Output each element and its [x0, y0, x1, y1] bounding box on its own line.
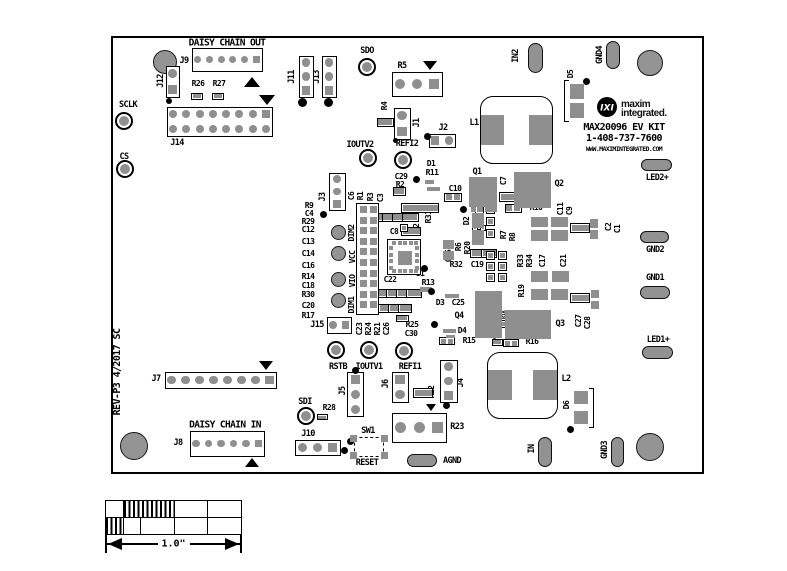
passive-pad [572, 298, 589, 302]
strip-pad [370, 238, 377, 245]
pin-round [351, 405, 360, 414]
passive-pad [394, 191, 404, 194]
label-gnd1: GND1 [646, 274, 664, 283]
arrowhead-left [108, 538, 122, 550]
connector-j9 [192, 48, 263, 72]
label-r6: R6 [455, 243, 463, 251]
label-1-408-737-7600: 1-408-737-7600 [586, 134, 662, 144]
smd-pad [472, 230, 484, 245]
pin-round [397, 111, 407, 121]
smd-pad [574, 411, 588, 424]
switch-pad [350, 452, 357, 459]
smd-pad [531, 230, 548, 241]
pin-round [249, 125, 257, 133]
passive-component [444, 193, 462, 202]
label-q4: Q4 [454, 312, 463, 321]
scale-cell [207, 518, 241, 534]
maxim-logo-wordmark: maxim integrated. [621, 100, 667, 118]
label-r23: R23 [450, 423, 464, 432]
smd-pad [400, 224, 408, 232]
pin1-marker-dot [583, 78, 590, 85]
label-d1: D1 [427, 160, 435, 168]
diode-bracket [564, 80, 569, 122]
label-sclk: SCLK [119, 101, 137, 110]
testpoint-ioutv2 [359, 149, 377, 167]
passive-component [377, 118, 394, 127]
label-r21: R21 [374, 323, 382, 336]
passive-component [398, 304, 412, 313]
connector-j3 [329, 173, 346, 211]
smd-pad [443, 329, 456, 333]
mounting-hole [120, 432, 148, 460]
smd-pad [551, 230, 568, 241]
label-j9: J9 [179, 57, 188, 66]
label-c14: C14 [302, 250, 315, 258]
mounting-hole [637, 50, 663, 76]
label-c28: C28 [584, 317, 592, 330]
label-refi1: REFI1 [399, 363, 422, 372]
strip-pad [360, 227, 367, 234]
pin-round [302, 72, 310, 80]
label-rstb: RSTB [329, 363, 347, 372]
pin1-marker-dot [324, 98, 333, 107]
passive-component [401, 203, 439, 213]
connector-j14 [167, 107, 273, 137]
passive-pad [448, 339, 454, 344]
label-ioutv1: IOUTV1 [355, 363, 382, 372]
connector-j7 [165, 372, 277, 389]
label-c16: C16 [302, 262, 315, 270]
testpoint-refi1 [395, 342, 413, 360]
pin-round [242, 440, 250, 448]
via-pad [331, 246, 346, 261]
pin-round [167, 376, 175, 384]
smd-pad [486, 251, 495, 260]
label-r11: R11 [426, 169, 439, 177]
label-reset: RESET [356, 459, 379, 468]
qfn-pad [415, 253, 419, 257]
pin1-marker-dot [421, 265, 428, 272]
pad-in2 [528, 43, 543, 73]
label-j2: J2 [438, 124, 447, 133]
pin1-marker-dot [413, 176, 420, 183]
pin-round [169, 125, 177, 133]
pin-round [302, 58, 310, 66]
pin-round [209, 125, 217, 133]
label-in2: IN2 [512, 49, 521, 63]
connector-j10 [295, 440, 341, 456]
strip-pad [370, 280, 377, 287]
pin1-marker-dot [460, 206, 467, 213]
via-pad [331, 293, 346, 308]
pad-led1 [642, 346, 673, 359]
passive-pad [378, 122, 392, 125]
passive-pad [402, 316, 407, 320]
passive-pad [403, 208, 438, 212]
label-r26: R26 [192, 80, 205, 88]
smd-pad [551, 217, 568, 227]
label-r14: R14 [302, 273, 315, 281]
pin-round [445, 136, 453, 144]
label-c11: C11 [557, 203, 565, 216]
label-r28: R28 [323, 404, 336, 412]
smd-pad [531, 217, 548, 227]
label-c20: C20 [302, 302, 315, 310]
scale-arrow: 1.0" [105, 534, 242, 554]
passive-pad [446, 194, 452, 200]
via-pad [331, 225, 346, 240]
label-r27: R27 [213, 80, 226, 88]
label-j14: J14 [170, 139, 184, 148]
pad-gnd3 [611, 437, 624, 467]
smd-pad [514, 172, 551, 208]
label-c8: C8 [390, 228, 398, 236]
scale-cell-hatched [123, 501, 174, 517]
pin-round [329, 321, 337, 329]
pin-1-square [168, 85, 176, 93]
pin-round [333, 175, 341, 183]
maxim-logo-icon: IXI [596, 96, 618, 122]
pin-round [182, 110, 190, 118]
pin-round [222, 125, 230, 133]
label-r34: R34 [526, 255, 534, 268]
label-c22: C22 [384, 276, 397, 284]
connector-j8 [190, 431, 265, 457]
pin-round [237, 376, 245, 384]
passive-component [191, 93, 203, 100]
smd-pad [531, 289, 548, 300]
pin-round [313, 443, 322, 452]
scale-cell [123, 518, 140, 534]
pin-1-square [265, 376, 273, 384]
smd-pad [472, 213, 484, 228]
smd-pad [469, 177, 497, 207]
smd-pad [531, 271, 548, 282]
pin-1-square [328, 443, 337, 452]
scale-cell [207, 501, 241, 517]
testpoint-cs [116, 160, 134, 178]
pad-gnd2 [640, 231, 669, 243]
strip-pad [360, 270, 367, 277]
via-pad [331, 272, 346, 287]
passive-component [393, 187, 406, 196]
label-r15: R15 [463, 337, 476, 345]
pin-1-square [395, 375, 404, 384]
pin-round [205, 440, 213, 448]
pin-round [218, 56, 225, 63]
smd-pad [446, 335, 455, 338]
pin-round [325, 58, 333, 66]
triangle-marker-down [259, 361, 273, 370]
passive-pad [408, 293, 421, 296]
pin-round [181, 376, 189, 384]
label-c30: C30 [405, 330, 418, 338]
passive-component [317, 414, 328, 420]
ic-u1 [387, 239, 421, 275]
passive-component [570, 293, 590, 303]
label-daisy-chain-in: DAISY CHAIN IN [189, 420, 261, 430]
pin-round [222, 110, 230, 118]
smd-pad [498, 262, 507, 271]
label-r5: R5 [397, 62, 406, 71]
pin-round [229, 56, 236, 63]
scale-tick [240, 535, 242, 553]
passive-strip [356, 203, 379, 315]
label-gnd3: GND3 [601, 441, 610, 459]
label-c12: C12 [302, 226, 315, 234]
qfn-pad [392, 241, 396, 245]
label-j5: J5 [339, 386, 348, 395]
pin1-marker-dot [166, 98, 172, 104]
smd-pad [570, 84, 584, 99]
label-l2: L2 [561, 375, 570, 384]
smd-pad [486, 229, 495, 238]
label-r30: R30 [302, 291, 315, 299]
passive-component [212, 93, 224, 100]
smd-pad [475, 291, 502, 338]
pin-1-square [429, 79, 439, 89]
smd-pad [478, 206, 483, 212]
pin1-marker-dot [443, 402, 450, 409]
pin-round [196, 110, 204, 118]
qfn-pad [403, 241, 407, 245]
pin-round [230, 440, 238, 448]
pin1-marker-dot [352, 367, 359, 374]
connector-j15 [327, 317, 352, 334]
passive-pad [512, 341, 518, 346]
pin-round [195, 376, 203, 384]
label-agnd: AGND [443, 457, 461, 466]
label-d5: D5 [567, 70, 575, 78]
strip-pad [370, 248, 377, 255]
label-d3: D3 [436, 299, 444, 307]
pad-led2 [641, 159, 672, 171]
label-r3: R3 [367, 193, 375, 201]
pin-1-square [325, 86, 333, 94]
strip-pad [370, 270, 377, 277]
qfn-pad [398, 251, 412, 265]
label-j4: J4 [457, 378, 466, 387]
pin-round [444, 377, 453, 386]
passive-pad [403, 217, 417, 220]
label-ioutv2: IOUTV2 [346, 141, 373, 150]
pin-round [209, 376, 217, 384]
connector-j4 [440, 360, 458, 403]
strip-pad [360, 291, 367, 298]
scale-bar-row [106, 518, 241, 534]
label-c2: C2 [605, 223, 613, 231]
smd-pad [486, 273, 495, 282]
passive-pad [506, 205, 512, 211]
pad-in [538, 437, 552, 467]
label-c27: C27 [575, 315, 583, 328]
passive-component [396, 315, 409, 322]
qfn-pad [414, 241, 418, 245]
smd-pad [498, 251, 507, 260]
strip-pad [360, 248, 367, 255]
label-q2: Q2 [554, 180, 563, 189]
smd-pad [445, 294, 459, 298]
diode-bracket [589, 388, 594, 428]
label-l1: L1 [469, 119, 478, 128]
strip-pad [360, 301, 367, 308]
pcb-silkscreen-figure: DAISY CHAIN OUTJ9R26R27SCLKJ14CSJ12J11J1… [0, 0, 787, 571]
pin1-marker-dot [431, 321, 438, 328]
pin-round [169, 110, 177, 118]
label-c7: C7 [500, 177, 508, 185]
label-in: IN [528, 444, 537, 453]
passive-component [413, 388, 433, 398]
connector-j2 [429, 134, 456, 148]
label-r24: R24 [365, 323, 373, 336]
qfn-pad [389, 253, 393, 257]
connector-r5 [392, 72, 443, 97]
pin-round [235, 125, 243, 133]
qfn-pad [415, 246, 419, 250]
scale-cell [174, 501, 208, 517]
qfn-pad [415, 259, 419, 263]
inductor-pad [529, 115, 552, 145]
scale-cell-hatched [106, 518, 123, 534]
label-c3: C3 [377, 194, 385, 202]
connector-r23 [392, 413, 447, 443]
label-sdi: SDI [298, 398, 312, 407]
smd-pad [591, 301, 599, 309]
pin-round [235, 110, 243, 118]
pin-1-square [351, 375, 360, 384]
label-r32: R32 [450, 261, 463, 269]
smd-pad [486, 217, 495, 226]
scale-bar [105, 500, 242, 535]
smd-pad [485, 206, 490, 212]
label-c9: C9 [566, 207, 574, 215]
passive-component [439, 337, 455, 345]
scale-length-label: 1.0" [157, 539, 189, 550]
passive-pad [572, 228, 589, 232]
inductor-l2 [487, 352, 558, 419]
pin-round [298, 443, 307, 452]
pin-round [414, 422, 425, 433]
passive-pad [218, 94, 222, 98]
pin-round [412, 79, 422, 89]
pin-round [395, 79, 405, 89]
inductor-l1 [480, 96, 553, 164]
strip-pad [370, 217, 377, 224]
pin-round [333, 188, 341, 196]
scale-cell [174, 518, 208, 534]
pin1-marker-dot [298, 98, 307, 107]
pin-round [262, 125, 270, 133]
pin-round [223, 376, 231, 384]
label-sdo: SDO [360, 47, 374, 56]
pin-1-square [255, 440, 263, 448]
strip-pad [360, 259, 367, 266]
label-www-maximintegrated-com: WWW.MAXIMINTEGRATED.COM [586, 146, 662, 153]
connector-j5 [347, 372, 364, 417]
passive-component [492, 339, 503, 346]
strip-pad [370, 206, 377, 213]
smd-pad [574, 391, 588, 404]
switch-pad [381, 435, 388, 442]
smd-pad [443, 251, 454, 260]
smd-pad [427, 187, 440, 191]
scale-cell [106, 501, 123, 517]
inductor-pad [481, 115, 504, 145]
svg-text:IXI: IXI [600, 104, 614, 114]
strip-pad [360, 238, 367, 245]
strip-pad [370, 291, 377, 298]
label-j3: J3 [319, 192, 328, 201]
smd-pad [570, 103, 584, 118]
label-led2+: LED2+ [646, 174, 669, 183]
smd-pad [443, 240, 454, 249]
strip-pad [370, 227, 377, 234]
smd-pad [486, 262, 495, 271]
label-j11: J11 [288, 70, 297, 84]
label-refi2: REFI2 [396, 140, 419, 149]
connector-j12 [166, 66, 180, 98]
reset-switch-sw1 [354, 437, 384, 457]
pin-round [251, 376, 259, 384]
label-r16: R16 [526, 338, 539, 346]
label-q3: Q3 [555, 320, 564, 329]
label-q1: Q1 [472, 168, 481, 177]
pin1-marker-dot [424, 133, 431, 140]
pin-round [217, 440, 225, 448]
label-d4: D4 [458, 327, 466, 335]
testpoint-rstb [327, 341, 345, 359]
label-dim2: DIM2 [348, 225, 356, 242]
pin-round [395, 422, 406, 433]
label-daisy-chain-out: DAISY CHAIN OUT [189, 38, 266, 48]
pin-round [249, 110, 257, 118]
testpoint-sdo [358, 58, 376, 76]
pin1-marker-dot [320, 211, 327, 218]
label-j7: J7 [151, 375, 160, 384]
pin-1-square [397, 127, 407, 137]
qfn-pad [389, 246, 393, 250]
pin-round [351, 390, 360, 399]
label-r4: R4 [381, 102, 389, 110]
label-c1: C1 [614, 225, 622, 233]
passive-pad [454, 194, 460, 200]
label-r25: R25 [406, 321, 419, 329]
label-j15: J15 [310, 321, 324, 330]
passive-pad [193, 94, 197, 98]
label-j1: J1 [413, 118, 422, 127]
pin-round [196, 125, 204, 133]
smd-pad [591, 290, 599, 298]
strip-pad [360, 280, 367, 287]
pin-1-square [262, 110, 270, 118]
smd-pad [471, 206, 476, 212]
pin-round [182, 125, 190, 133]
label-c18: C18 [302, 282, 315, 290]
smd-pad [590, 230, 598, 239]
triangle-marker-down [259, 95, 275, 105]
label-d2: D2 [463, 217, 471, 225]
qfn-pad [415, 266, 419, 270]
arrowhead-right [225, 538, 239, 550]
pin1-marker-dot [393, 138, 398, 143]
pin-round [395, 390, 404, 399]
label-r1: R1 [357, 192, 365, 200]
label-j6: J6 [382, 379, 391, 388]
label-c13: C13 [302, 238, 315, 246]
qfn-pad [409, 269, 413, 273]
scale-bar-row [106, 501, 241, 518]
label-r7: R7 [500, 231, 508, 239]
